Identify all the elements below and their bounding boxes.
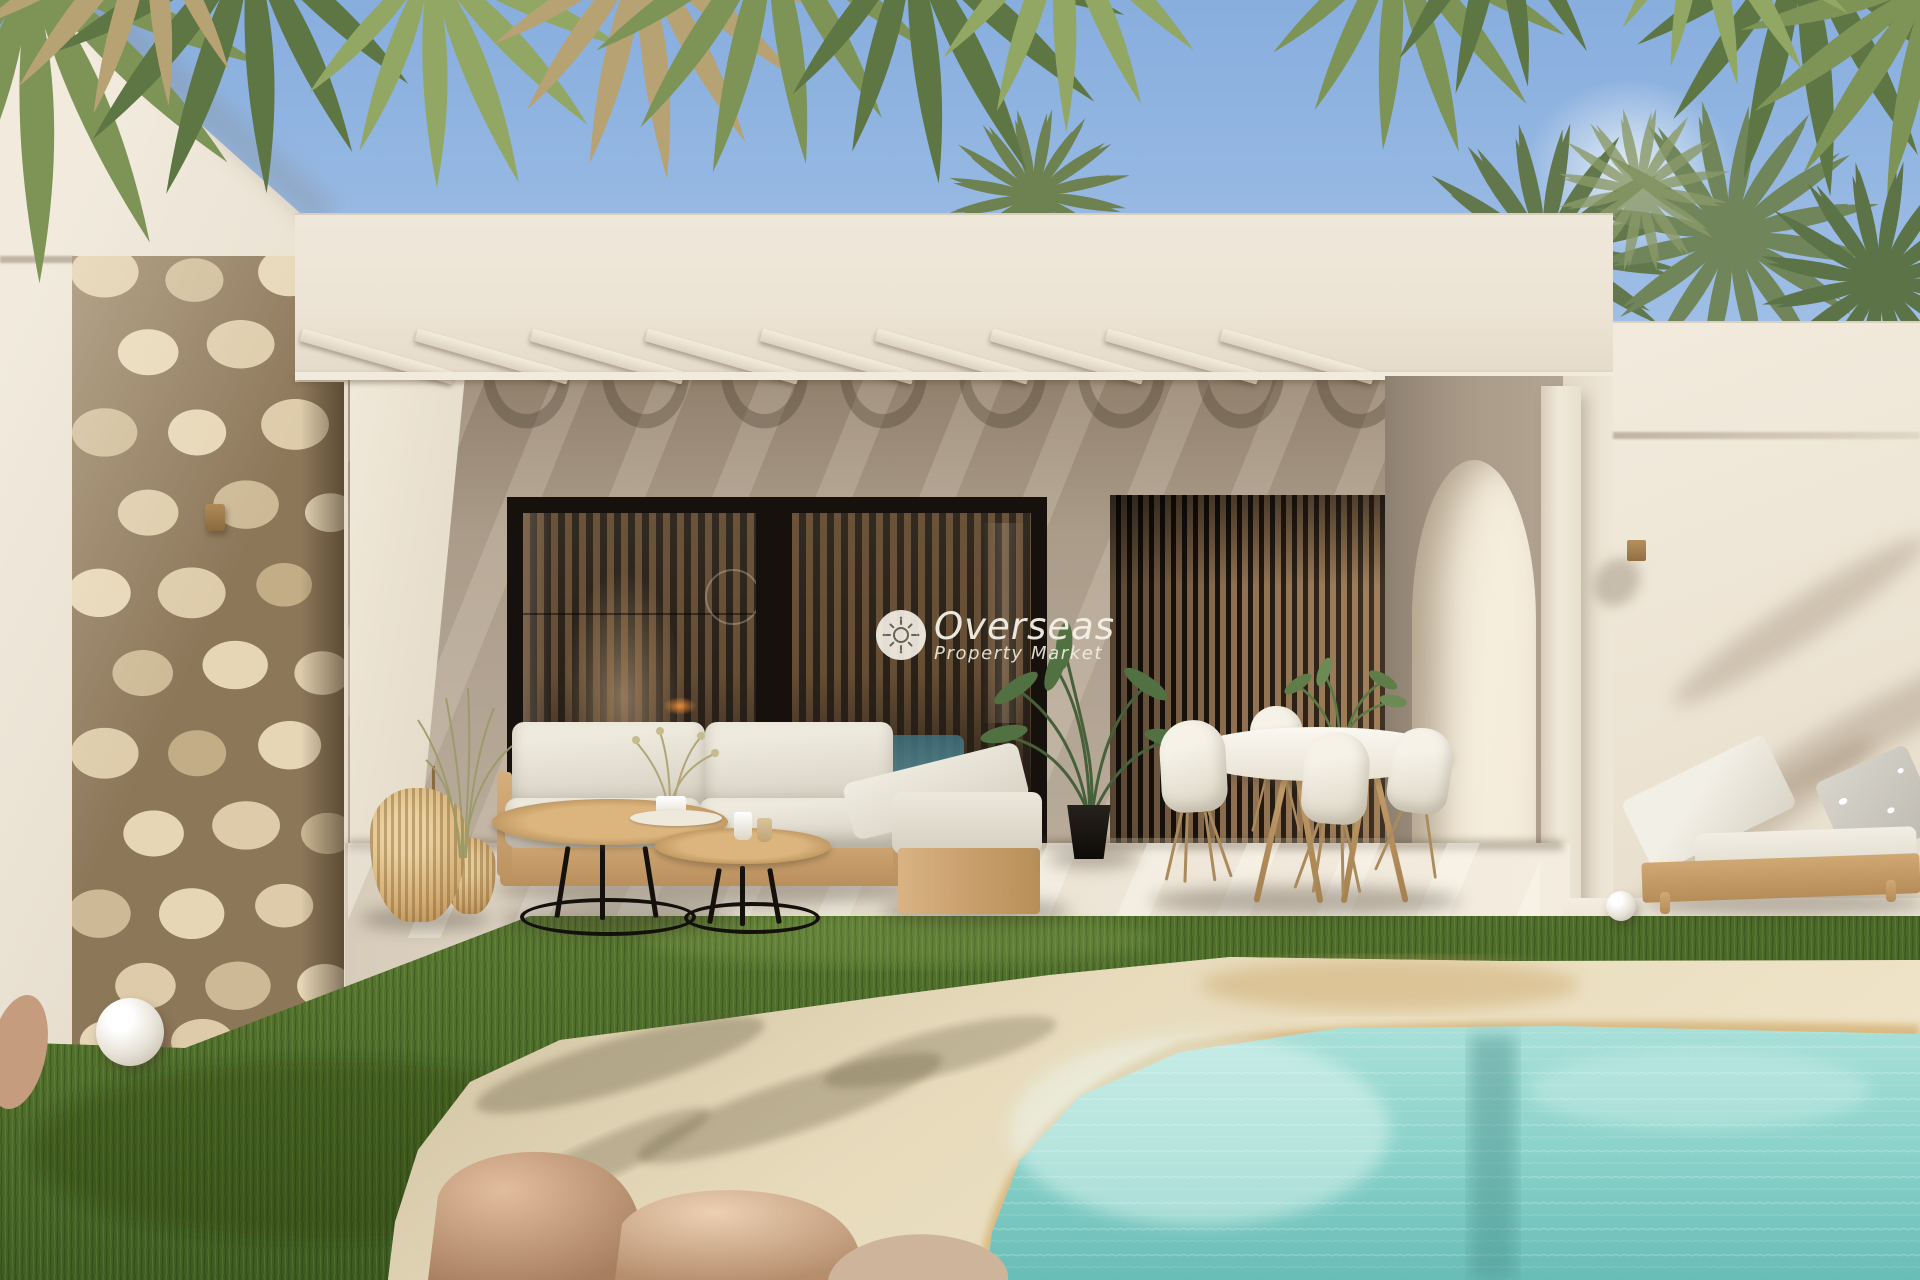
watermark-brand: Overseas [934,610,1115,644]
palm-frond [476,0,823,193]
palm-frond [1666,0,1920,270]
sun-logo-icon [876,610,926,660]
watermark: Overseas Property Market [876,610,1115,664]
watermark-tagline: Property Market [934,644,1115,664]
villa-render-scene: Overseas Property Market [0,0,1920,1280]
watermark-text: Overseas Property Market [934,610,1115,664]
